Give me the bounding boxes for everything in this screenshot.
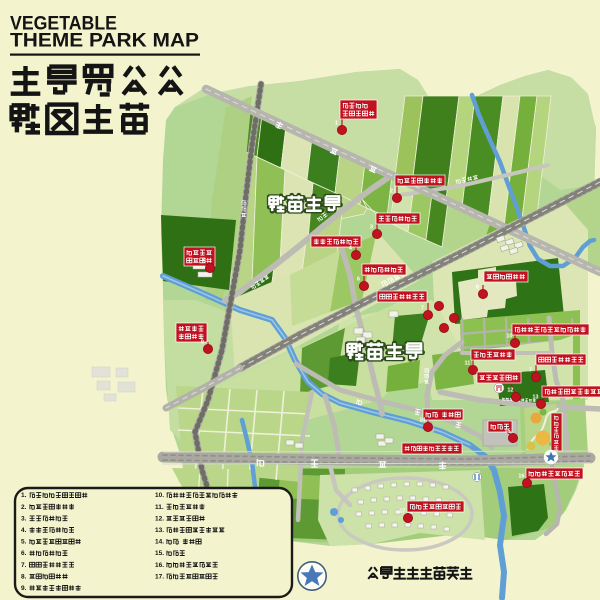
svg-text:10.: 10. xyxy=(155,492,164,499)
svg-text:15: 15 xyxy=(504,428,510,434)
svg-text:1.: 1. xyxy=(21,492,27,499)
svg-text:8.: 8. xyxy=(21,573,27,580)
svg-text:16: 16 xyxy=(518,473,524,479)
svg-text:1: 1 xyxy=(335,120,338,126)
svg-text:8: 8 xyxy=(476,284,479,290)
svg-text:7: 7 xyxy=(529,367,532,373)
svg-text:10: 10 xyxy=(506,333,512,339)
svg-text:11.: 11. xyxy=(155,504,164,511)
svg-text:6.: 6. xyxy=(21,550,27,557)
svg-text:7: 7 xyxy=(421,305,424,311)
svg-text:13.: 13. xyxy=(155,527,164,534)
svg-text:7.: 7. xyxy=(21,562,27,569)
svg-text:9.: 9. xyxy=(21,585,27,592)
svg-text:3: 3 xyxy=(370,224,373,230)
svg-text:13: 13 xyxy=(532,394,538,400)
svg-text:9: 9 xyxy=(201,339,204,345)
svg-text:5: 5 xyxy=(203,258,206,264)
svg-text:THEME PARK MAP: THEME PARK MAP xyxy=(10,30,199,52)
svg-text:17.: 17. xyxy=(155,573,164,580)
svg-text:12: 12 xyxy=(507,387,513,393)
svg-text:14.: 14. xyxy=(155,539,164,546)
svg-text:15.: 15. xyxy=(155,550,164,557)
svg-text:5.: 5. xyxy=(21,539,27,546)
svg-text:4.: 4. xyxy=(21,527,27,534)
svg-text:3.: 3. xyxy=(21,515,27,522)
svg-text:2.: 2. xyxy=(21,504,27,511)
svg-text:17: 17 xyxy=(399,508,405,514)
svg-text:16.: 16. xyxy=(155,562,164,569)
svg-text:14: 14 xyxy=(419,417,426,423)
svg-text:2: 2 xyxy=(390,188,393,194)
svg-text:11: 11 xyxy=(464,360,470,366)
svg-text:6: 6 xyxy=(357,276,360,282)
svg-text:12.: 12. xyxy=(155,515,164,522)
